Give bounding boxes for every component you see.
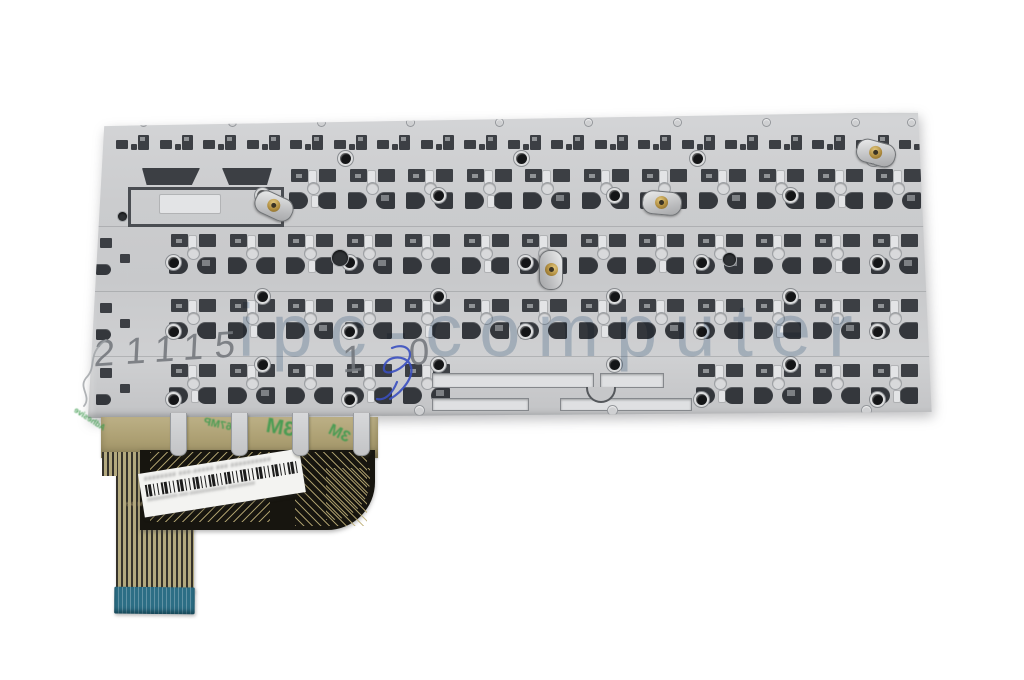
key-clip <box>726 234 743 247</box>
key-clip <box>160 140 172 149</box>
edge-cutout <box>100 303 112 313</box>
key-clip <box>350 169 367 182</box>
screw <box>609 359 620 370</box>
key-clip-unit <box>753 296 805 342</box>
spacebar-slot <box>432 373 594 388</box>
clip-detail <box>761 239 767 243</box>
key-hook <box>813 322 832 339</box>
standoff-brass-nut <box>868 144 884 160</box>
screw <box>340 153 351 164</box>
key-clip-unit <box>812 296 864 342</box>
key-clip <box>492 234 509 247</box>
key-hook <box>314 257 333 274</box>
key-clip <box>610 144 616 150</box>
key-clip <box>175 144 181 150</box>
spacebar-slot <box>432 398 529 411</box>
key-clip <box>581 234 598 247</box>
key-clip <box>726 299 743 312</box>
key-dome-hole <box>539 313 550 324</box>
screw <box>696 394 707 405</box>
key-clip <box>131 144 137 150</box>
clip-detail <box>878 304 884 308</box>
edge-cutout <box>120 319 130 328</box>
key-hook <box>665 257 684 274</box>
clip-detail <box>923 137 928 141</box>
key-hook <box>899 387 918 404</box>
rivet <box>415 406 424 415</box>
key-clip <box>550 299 567 312</box>
edge-cutout <box>100 238 112 248</box>
key-clip-unit <box>753 361 805 407</box>
key-clip <box>609 234 626 247</box>
key-clip <box>756 234 773 247</box>
key-dome-hole <box>364 313 375 324</box>
clip-detail <box>469 239 475 243</box>
key-hook <box>490 257 509 274</box>
key-dome-hole <box>890 313 901 324</box>
clip-detail <box>820 239 826 243</box>
clip-detail <box>495 325 503 331</box>
clip-detail <box>647 174 653 178</box>
brass-standoff <box>641 189 683 216</box>
key-clip <box>843 299 860 312</box>
clip-detail <box>644 239 650 243</box>
fn-clip-unit <box>375 133 411 159</box>
key-dome-hole <box>773 313 784 324</box>
key-hook <box>724 387 743 404</box>
key-hook <box>757 192 776 209</box>
backlight-slot <box>602 326 608 337</box>
tape-print-3m-small: 3M <box>325 421 353 447</box>
ribbon-connector-stiffener <box>114 587 195 615</box>
backlight-slot <box>251 326 257 337</box>
clip-detail <box>586 304 592 308</box>
screw <box>692 153 703 164</box>
key-clip <box>436 144 442 150</box>
key-hook <box>754 322 773 339</box>
fn-clip-unit <box>158 133 194 159</box>
fn-clip-unit <box>201 133 237 159</box>
key-clip-unit <box>285 231 337 277</box>
pen-scribble <box>362 342 422 406</box>
key-clip <box>258 234 275 247</box>
key-clip <box>667 234 684 247</box>
key-clip <box>199 234 216 247</box>
clip-detail <box>823 174 829 178</box>
key-dome-hole <box>832 313 843 324</box>
key-dome-hole <box>305 313 316 324</box>
backlight-slot <box>485 261 491 272</box>
key-hook <box>754 387 773 404</box>
clip-detail <box>527 304 533 308</box>
key-clip <box>319 169 336 182</box>
pencil-squiggle <box>76 336 114 410</box>
backlight-slot <box>312 196 318 207</box>
key-dome-hole <box>715 378 726 389</box>
key-clip <box>408 169 425 182</box>
key-clip <box>784 144 790 150</box>
clip-detail <box>589 174 595 178</box>
fn-clip-unit <box>549 133 585 159</box>
key-clip <box>787 169 804 182</box>
key-clip <box>725 140 737 149</box>
key-clip-unit <box>578 296 630 342</box>
clip-detail <box>586 239 592 243</box>
key-dome-hole <box>481 313 492 324</box>
plate-tab <box>231 413 248 456</box>
key-clip <box>550 234 567 247</box>
key-clip-unit <box>461 231 513 277</box>
key-clip <box>812 140 824 149</box>
key-clip <box>247 140 259 149</box>
key-hook <box>579 257 598 274</box>
key-dome-hole <box>364 248 375 259</box>
key-clip <box>347 299 364 312</box>
key-hook <box>841 387 860 404</box>
clip-detail <box>352 304 358 308</box>
clip-detail <box>235 239 241 243</box>
rivet <box>318 119 325 126</box>
key-clip <box>305 144 311 150</box>
key-clip <box>443 135 454 150</box>
key-clip <box>522 299 539 312</box>
clip-detail <box>793 137 798 141</box>
key-clip <box>612 169 629 182</box>
key-clip <box>653 144 659 150</box>
key-clip <box>230 299 247 312</box>
key-clip <box>464 140 476 149</box>
backlight-slot <box>309 261 315 272</box>
clip-detail <box>410 304 416 308</box>
clip-detail <box>878 369 884 373</box>
key-clip <box>218 144 224 150</box>
key-hook <box>317 192 336 209</box>
key-clip-unit <box>522 166 574 212</box>
key-hook <box>813 387 832 404</box>
key-dome-hole <box>481 248 492 259</box>
key-clip-unit <box>578 231 630 277</box>
key-hook <box>493 192 512 209</box>
clip-detail <box>227 137 232 141</box>
clip-detail <box>184 137 189 141</box>
key-clip-unit <box>402 231 454 277</box>
key-clip <box>230 364 247 377</box>
key-clip <box>378 169 395 182</box>
key-clip <box>566 144 572 150</box>
spacebar-slot <box>600 373 664 388</box>
key-clip <box>698 299 715 312</box>
screw <box>516 153 527 164</box>
clip-detail <box>703 239 709 243</box>
key-hook <box>637 322 656 339</box>
edge-cutout <box>120 384 130 393</box>
clip-detail <box>878 239 884 243</box>
key-clip <box>740 144 746 150</box>
key-clip <box>791 135 802 150</box>
key-dome-hole <box>247 248 258 259</box>
key-clip <box>759 169 776 182</box>
key-clip <box>873 299 890 312</box>
key-clip <box>334 140 346 149</box>
key-hook <box>899 322 918 339</box>
key-clip <box>873 234 890 247</box>
key-clip <box>522 234 539 247</box>
key-dome-hole <box>598 313 609 324</box>
key-hook <box>431 257 450 274</box>
key-clip <box>316 234 333 247</box>
key-clip <box>171 234 188 247</box>
key-dome-hole <box>656 248 667 259</box>
ribbon-cable-step <box>102 452 118 476</box>
key-hook <box>754 257 773 274</box>
key-hook <box>548 322 567 339</box>
key-clip <box>698 364 715 377</box>
key-clip <box>904 169 921 182</box>
plate-hole <box>118 212 127 221</box>
key-hook <box>724 322 743 339</box>
key-dome-hole <box>188 313 199 324</box>
key-clip <box>818 169 835 182</box>
plate-tab <box>353 413 370 456</box>
key-hook <box>256 257 275 274</box>
cutout-inner <box>160 195 220 213</box>
key-clip-unit <box>464 166 516 212</box>
key-hook <box>462 257 481 274</box>
key-clip <box>182 135 193 150</box>
key-clip <box>756 364 773 377</box>
key-clip-unit <box>347 166 399 212</box>
key-clip <box>530 135 541 150</box>
key-clip <box>375 234 392 247</box>
screw <box>872 257 883 268</box>
key-clip <box>551 140 563 149</box>
key-clip <box>203 140 215 149</box>
key-clip-unit <box>288 166 340 212</box>
key-clip <box>525 169 542 182</box>
screw <box>872 326 883 337</box>
key-clip <box>701 169 718 182</box>
spacebar-slot <box>560 398 692 411</box>
key-clip-unit <box>227 231 279 277</box>
key-hook <box>699 192 718 209</box>
screw <box>785 359 796 370</box>
clip-detail <box>749 137 754 141</box>
key-clip <box>595 140 607 149</box>
key-clip <box>639 299 656 312</box>
key-dome-hole <box>422 313 433 324</box>
key-clip <box>639 234 656 247</box>
key-clip <box>116 140 128 149</box>
key-clip <box>573 135 584 150</box>
key-clip-unit <box>168 231 220 277</box>
clip-detail <box>314 137 319 141</box>
key-clip <box>729 169 746 182</box>
key-hook <box>228 387 247 404</box>
key-clip <box>171 299 188 312</box>
screw <box>696 326 707 337</box>
rivet <box>862 406 871 415</box>
clip-detail <box>358 137 363 141</box>
clip-detail <box>644 304 650 308</box>
key-clip <box>834 135 845 150</box>
key-dome-hole <box>890 378 901 389</box>
key-dome-hole <box>715 313 726 324</box>
key-clip <box>405 299 422 312</box>
plate-hole <box>332 250 348 266</box>
key-clip-unit <box>815 166 867 212</box>
screw <box>344 326 355 337</box>
key-clip <box>225 135 236 150</box>
screw <box>609 190 620 201</box>
screw <box>696 257 707 268</box>
wide-cutout <box>142 168 200 185</box>
standoff-brass-nut <box>545 263 558 276</box>
key-hook <box>348 192 367 209</box>
key-clip <box>670 169 687 182</box>
plate-hole <box>723 253 736 266</box>
key-hook <box>197 387 216 404</box>
key-clip <box>726 364 743 377</box>
key-clip <box>704 135 715 150</box>
key-clip <box>421 140 433 149</box>
key-clip <box>508 140 520 149</box>
key-clip-unit <box>405 166 457 212</box>
key-clip-unit <box>812 231 864 277</box>
rivet <box>585 119 592 126</box>
key-clip <box>827 144 833 150</box>
key-dome-hole <box>422 248 433 259</box>
clip-detail <box>355 174 361 178</box>
key-clip-unit <box>581 166 633 212</box>
clip-detail <box>836 137 841 141</box>
key-clip <box>377 140 389 149</box>
clip-detail <box>846 325 854 331</box>
rivet <box>229 119 236 126</box>
key-clip-unit <box>695 231 747 277</box>
key-clip <box>921 135 932 150</box>
key-clip <box>581 299 598 312</box>
key-hook <box>228 257 247 274</box>
clip-detail <box>293 239 299 243</box>
clip-detail <box>378 260 386 266</box>
key-dome-hole <box>835 183 846 194</box>
clip-detail <box>575 137 580 141</box>
key-clip <box>486 135 497 150</box>
key-dome-hole <box>893 183 904 194</box>
key-clip <box>405 234 422 247</box>
clip-detail <box>761 369 767 373</box>
key-clip <box>349 144 355 150</box>
key-hook <box>523 192 542 209</box>
fn-clip-unit <box>636 133 672 159</box>
screw <box>872 394 883 405</box>
key-clip <box>199 299 216 312</box>
key-hook <box>286 387 305 404</box>
key-clip <box>436 169 453 182</box>
fn-clip-unit <box>767 133 803 159</box>
key-hook <box>844 192 863 209</box>
rivet <box>908 119 915 126</box>
screw <box>785 190 796 201</box>
key-clip <box>815 299 832 312</box>
clip-detail <box>445 137 450 141</box>
key-clip <box>899 140 911 149</box>
key-clip <box>316 299 333 312</box>
key-hook <box>314 387 333 404</box>
rivet <box>496 119 503 126</box>
fn-clip-unit <box>897 133 933 159</box>
key-hook <box>403 257 422 274</box>
key-clip <box>815 234 832 247</box>
rivet <box>140 119 147 126</box>
clip-detail <box>381 195 389 201</box>
key-clip <box>347 234 364 247</box>
screw <box>168 394 179 405</box>
key-hook <box>607 257 626 274</box>
clip-detail <box>319 325 327 331</box>
key-clip-unit <box>756 166 808 212</box>
key-clip <box>269 135 280 150</box>
key-clip <box>638 140 650 149</box>
plate-tab <box>292 413 309 456</box>
clip-detail <box>176 239 182 243</box>
key-hook <box>816 192 835 209</box>
key-clip <box>901 364 918 377</box>
clip-detail <box>907 195 915 201</box>
key-clip-unit <box>285 361 337 407</box>
clip-detail <box>532 137 537 141</box>
clip-detail <box>413 174 419 178</box>
fn-clip-unit <box>245 133 281 159</box>
key-clip <box>356 135 367 150</box>
edge-cutout <box>96 264 111 275</box>
key-clip <box>667 299 684 312</box>
key-clip-unit <box>870 231 922 277</box>
clip-detail <box>469 304 475 308</box>
key-clip <box>464 299 481 312</box>
key-clip <box>843 234 860 247</box>
key-clip <box>769 140 781 149</box>
clip-detail <box>176 304 182 308</box>
screw <box>344 394 355 405</box>
screw <box>168 257 179 268</box>
key-clip <box>399 135 410 150</box>
key-hook <box>582 192 601 209</box>
key-clip <box>876 169 893 182</box>
clip-detail <box>176 369 182 373</box>
key-hook <box>782 257 801 274</box>
screw <box>433 190 444 201</box>
key-clip <box>553 169 570 182</box>
clip-detail <box>820 369 826 373</box>
fn-clip-unit <box>288 133 324 159</box>
key-dome-hole <box>188 248 199 259</box>
fn-clip-unit <box>593 133 629 159</box>
screw <box>520 326 531 337</box>
key-clip <box>660 135 671 150</box>
backlight-slot <box>192 391 198 402</box>
fn-clip-unit <box>723 133 759 159</box>
backlight-slot <box>839 196 845 207</box>
clip-detail <box>904 260 912 266</box>
key-dome-hole <box>718 183 729 194</box>
clip-detail <box>202 260 210 266</box>
key-hook <box>813 257 832 274</box>
key-clip <box>815 364 832 377</box>
key-dome-hole <box>656 313 667 324</box>
key-dome-hole <box>247 313 258 324</box>
standoff-brass-nut <box>655 195 669 209</box>
